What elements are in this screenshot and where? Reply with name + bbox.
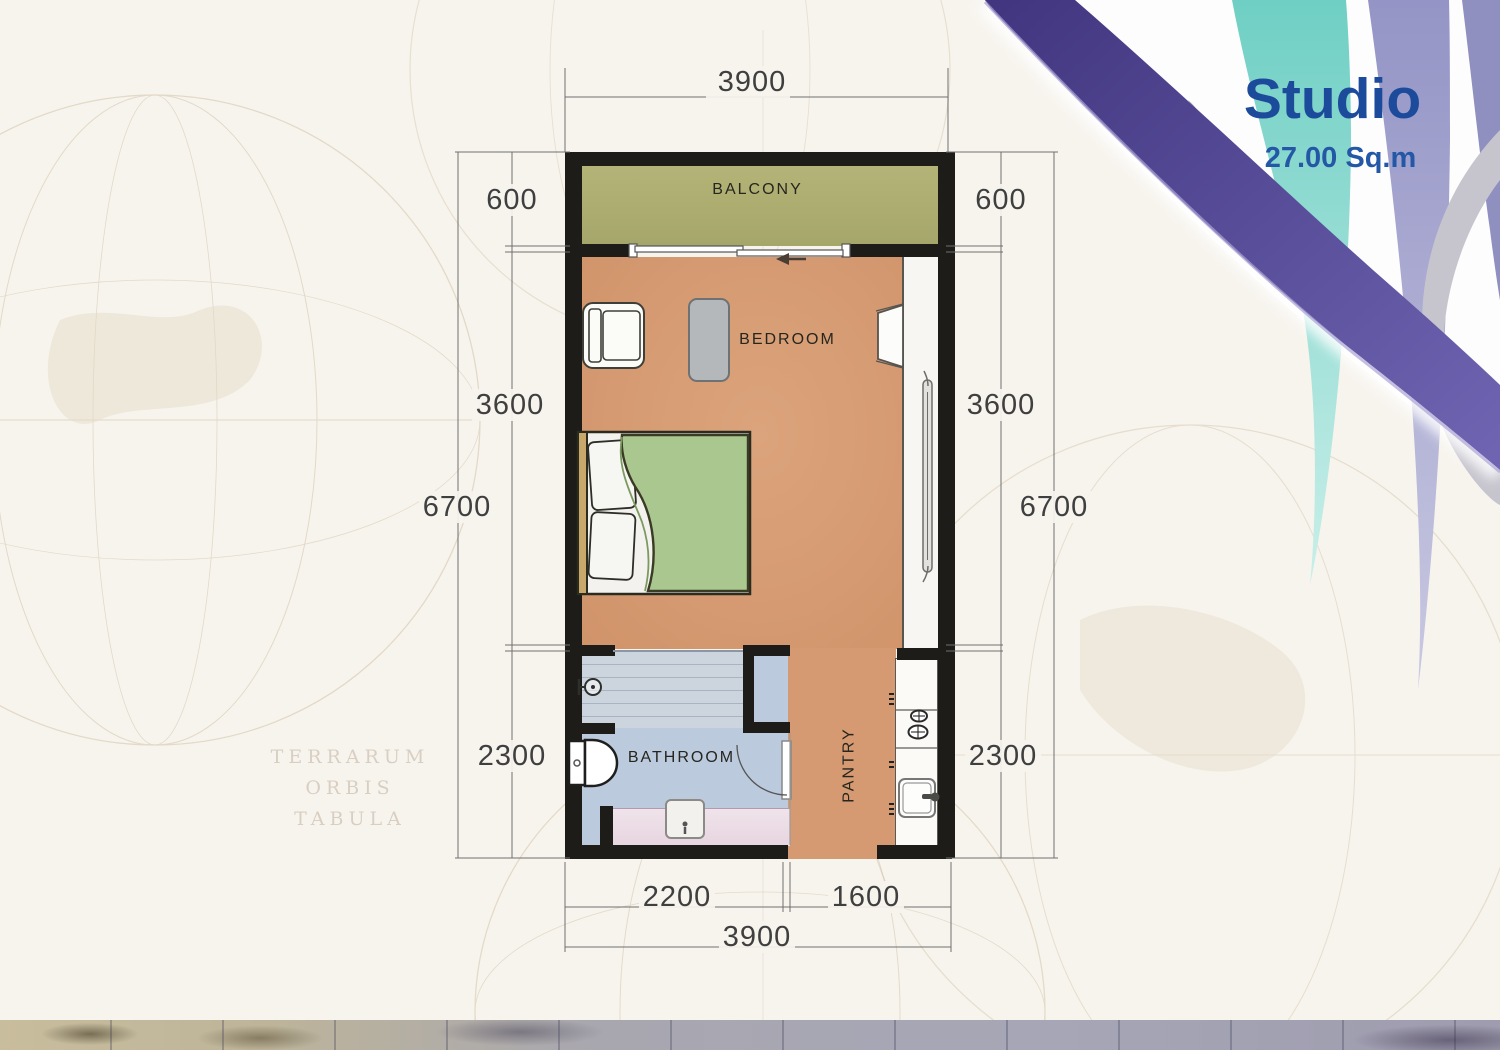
- entrance-threshold-floor: [788, 845, 877, 859]
- unit-type-title: Studio: [1160, 66, 1500, 132]
- unit-area-label: 27.00 Sq.m: [1168, 142, 1500, 175]
- dim-right-bedroom: 3600: [941, 389, 1061, 422]
- dim-left-bedroom: 3600: [450, 389, 570, 422]
- room-label-balcony: BALCONY: [660, 181, 855, 199]
- swoosh-gray-swirl: [1422, 130, 1500, 505]
- watermark-line: TABULA: [250, 804, 450, 835]
- dim-top-width: 3900: [688, 66, 808, 99]
- wall-bath-top-stub: [565, 645, 615, 656]
- wall-slidingdoor-right: [846, 244, 938, 257]
- wall-kitchen-stub: [897, 648, 938, 660]
- dim-bottom-left-segment: 2200: [617, 881, 737, 914]
- room-label-pantry: PANTRY: [795, 710, 905, 820]
- dim-left-balcony: 600: [462, 184, 562, 217]
- dim-right-total: 6700: [994, 491, 1114, 524]
- wall-slidingdoor-left: [565, 244, 633, 257]
- map-watermark-text: TERRARUM ORBIS TABULA: [250, 742, 450, 835]
- room-label-bathroom: BATHROOM: [584, 749, 779, 767]
- dim-left-total: 6700: [397, 491, 517, 524]
- wall-bath-niche-top: [743, 645, 790, 656]
- dim-bottom-width: 3900: [697, 921, 817, 954]
- dim-bottom-right-segment: 1600: [806, 881, 926, 914]
- watermark-line: TERRARUM: [250, 742, 450, 773]
- wall-bath-mid-stub: [565, 723, 615, 734]
- dim-left-lower: 2300: [452, 740, 572, 773]
- room-label-bedroom: BEDROOM: [690, 331, 885, 349]
- shower-area: [582, 652, 743, 728]
- wall-bath-niche-vert: [743, 645, 754, 733]
- balcony-floor: [578, 164, 942, 246]
- watermark-line: ORBIS: [250, 773, 450, 804]
- wall-bottom-left: [565, 845, 788, 859]
- dim-right-lower: 2300: [943, 740, 1063, 773]
- wall-bath-niche-bottom: [743, 722, 790, 733]
- wall-bottom-right: [877, 845, 952, 859]
- wall-top: [565, 152, 950, 166]
- dim-right-balcony: 600: [951, 184, 1051, 217]
- bedroom-floor: [582, 257, 904, 649]
- map-border-bottom: [0, 1020, 1500, 1050]
- vanity-counter: [608, 808, 790, 846]
- map-border-top: [0, 0, 1500, 31]
- wardrobe-strip: [902, 257, 940, 649]
- wall-bath-vanity-stub: [600, 806, 613, 845]
